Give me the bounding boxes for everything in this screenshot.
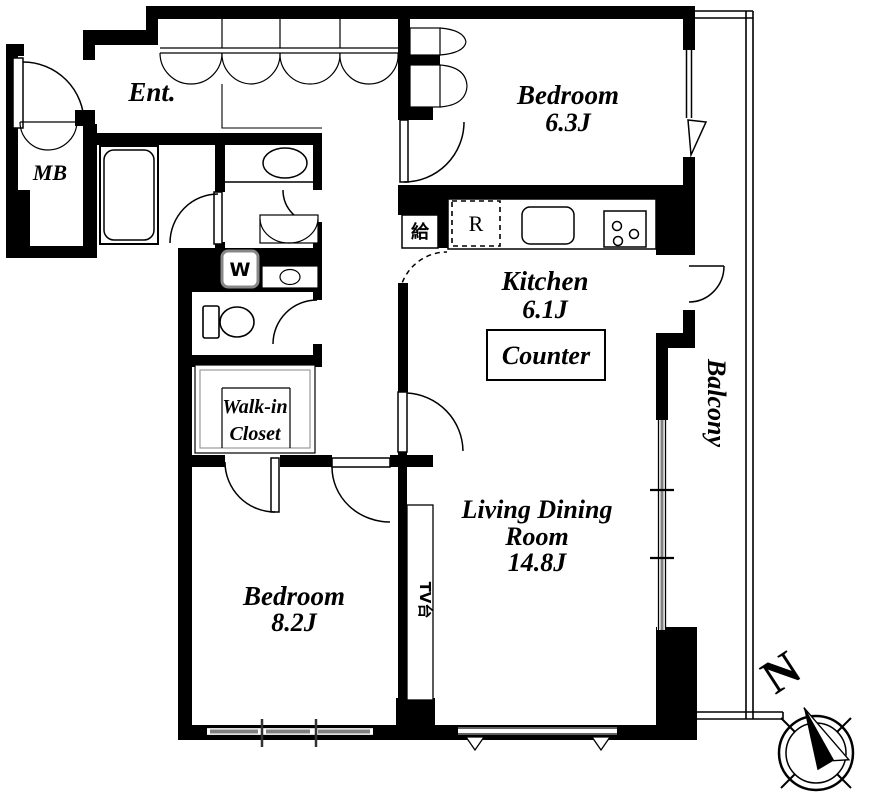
floor-plan: Ent. MB Bedroom 6.3J Kitchen 6.1J Counte… [0,0,877,803]
wic-door [225,458,279,512]
wic-label-line1: Walk-in [222,396,287,418]
bedroom-bottom-label: Bedroom [242,581,345,611]
wic-label-line2: Closet [229,423,282,445]
tv-stand-label: TV台 [416,582,434,619]
meter-box-label: MB [32,160,67,185]
bedroom-bottom-door [332,458,390,522]
ldk-door [398,392,463,452]
water-supply-label: 給 [411,221,430,243]
entrance-step-line [222,84,322,128]
bedroom-top-size: 6.3J [545,108,592,137]
linen-cabinet [260,215,318,243]
meter-box-room [16,124,75,248]
living-dining-line2: Room [504,522,569,551]
washbasin-icon [225,148,313,182]
counter-label: Counter [502,341,591,370]
refrigerator-label: R [469,211,484,236]
floor-plan-canvas: Ent. MB Bedroom 6.3J Kitchen 6.1J Counte… [0,0,877,803]
bathtub-icon [100,146,158,244]
bedroom-top-door [400,120,464,182]
bedroom-bottom-size: 8.2J [271,608,318,637]
ldk-balcony-sliding-door [650,420,674,630]
toilet-sink-icon [262,266,318,288]
balcony-label: Balcony [702,358,731,448]
entrance-door [13,58,84,128]
entrance-label: Ent. [127,77,175,107]
compass: N [752,641,853,790]
bedroom-bottom-window [207,719,373,747]
kitchen-label: Kitchen [500,266,588,296]
north-label: N [752,641,810,705]
toilet-icon [203,306,254,338]
bathroom-door [170,192,222,244]
toilet-door [273,300,317,344]
compass-needle-icon [801,700,849,770]
kitchen-size: 6.1J [522,295,569,324]
bedroom-top-closet [410,28,467,107]
kitchen-balcony-door [689,266,724,302]
shoe-closet [160,19,398,84]
washer-label: W [230,259,251,281]
awning-window-icon [688,120,706,155]
living-dining-size: 14.8J [508,548,568,577]
living-dining-line1: Living Dining [461,495,613,524]
bedroom-top-window [684,50,706,155]
bedroom-top-label: Bedroom [516,80,619,110]
